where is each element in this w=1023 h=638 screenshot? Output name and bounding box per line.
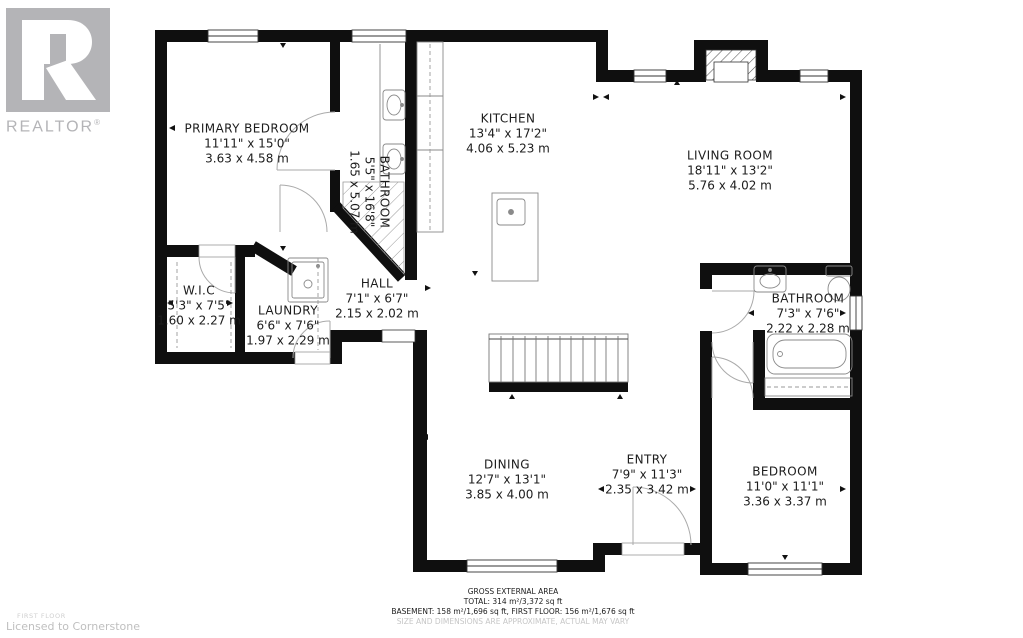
area-summary: GROSS EXTERNAL AREA TOTAL: 314 m²/3,372 … (391, 587, 634, 627)
floor-plan-page: PRIMARY BEDROOM 11'11" x 15'0" 3.63 x 4.… (0, 0, 1023, 638)
room-label-laundry: LAUNDRY 6'6" x 7'6" 1.97 x 2.29 m (246, 304, 330, 349)
fireplace-icon (706, 50, 756, 82)
realtor-r-icon (6, 8, 110, 112)
room-label-living-room: LIVING ROOM 18'11" x 13'2" 5.76 x 4.02 m (687, 149, 773, 194)
dimension-arrow (598, 486, 604, 492)
room-label-kitchen: KITCHEN 13'4" x 17'2" 4.06 x 5.23 m (466, 112, 550, 157)
room-label-wic: W.I.C 5'3" x 7'5" 1.60 x 2.27 m (157, 284, 241, 329)
realtor-logo: REALTOR® (6, 8, 118, 136)
dimension-arrow (169, 125, 175, 131)
window (467, 560, 557, 572)
floor-plan-svg (0, 0, 1023, 638)
window (800, 70, 828, 82)
room-label-bedroom: BEDROOM 11'0" x 11'1" 3.36 x 3.37 m (743, 465, 827, 510)
door-arc (712, 291, 754, 333)
door-arc (280, 185, 327, 232)
room-label-ensuite-bathroom: BATHROOM 5'5" x 16'8" 1.65 x 5.07 m (347, 150, 392, 234)
area-summary-breakdown: BASEMENT: 158 m²/1,696 sq ft, FIRST FLOO… (391, 607, 634, 617)
room-label-entry: ENTRY 7'9" x 11'3" 2.35 x 3.42 m (605, 453, 689, 498)
dimension-arrow (690, 486, 696, 492)
window (748, 563, 822, 575)
window (352, 30, 406, 42)
bathtub-icon (767, 334, 852, 374)
license-tag: Licensed to Cornerstone (6, 620, 140, 633)
window (634, 70, 666, 82)
sink-icon (383, 90, 405, 120)
dimension-arrow (782, 555, 788, 560)
dimension-arrow (840, 486, 846, 492)
realtor-logo-text: REALTOR® (6, 118, 118, 136)
window (850, 296, 862, 330)
area-summary-disclaimer: SIZE AND DIMENSIONS ARE APPROXIMATE, ACT… (391, 617, 634, 627)
dimension-arrow (617, 394, 623, 399)
area-summary-title: GROSS EXTERNAL AREA (391, 587, 634, 597)
dimension-arrow (603, 94, 609, 100)
dimension-arrow (593, 94, 599, 100)
room-label-hall: HALL 7'1" x 6'7" 2.15 x 2.02 m (335, 277, 419, 322)
dimension-arrow (472, 271, 478, 276)
dimension-arrow (425, 285, 431, 291)
area-summary-total: TOTAL: 314 m²/3,372 sq ft (391, 597, 634, 607)
room-label-primary-bedroom: PRIMARY BEDROOM 11'11" x 15'0" 3.63 x 4.… (184, 122, 309, 167)
floor-tag: FIRST FLOOR (17, 612, 66, 620)
dimension-arrow (280, 246, 286, 251)
room-label-main-bathroom: BATHROOM 7'3" x 7'6" 2.22 x 2.28 m (766, 292, 850, 337)
dimension-arrow (840, 94, 846, 100)
door-thresholds (199, 245, 684, 555)
room-label-dining: DINING 12'7" x 13'1" 3.85 x 4.00 m (465, 458, 549, 503)
kitchen-island-icon (492, 193, 538, 281)
stairs-icon (489, 334, 628, 382)
dimension-arrow (509, 394, 515, 399)
window (208, 30, 258, 42)
sink-icon (497, 199, 525, 225)
dimension-arrow (280, 43, 286, 48)
